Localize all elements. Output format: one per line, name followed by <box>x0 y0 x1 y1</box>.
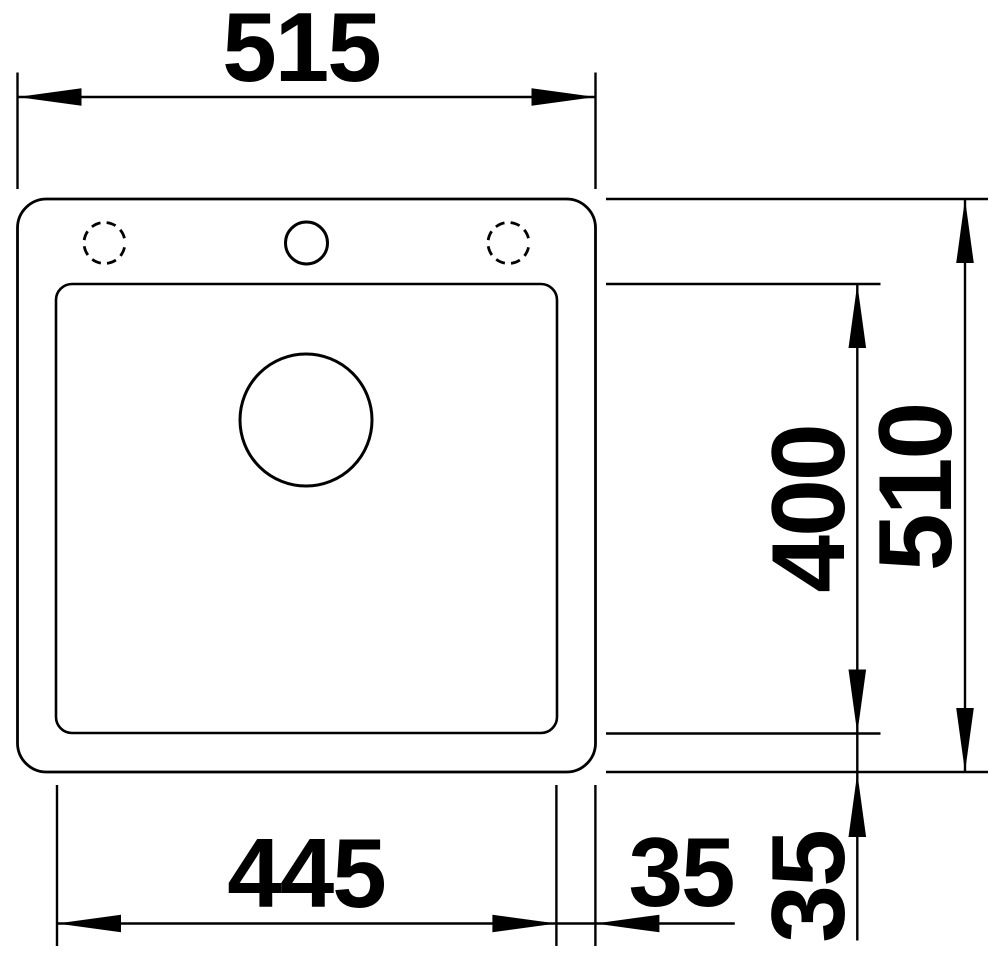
svg-text:400: 400 <box>751 425 867 593</box>
svg-text:515: 515 <box>222 0 380 102</box>
svg-text:510: 510 <box>858 404 974 572</box>
svg-text:35: 35 <box>628 817 733 927</box>
svg-text:35: 35 <box>751 831 867 943</box>
svg-text:445: 445 <box>227 818 385 928</box>
